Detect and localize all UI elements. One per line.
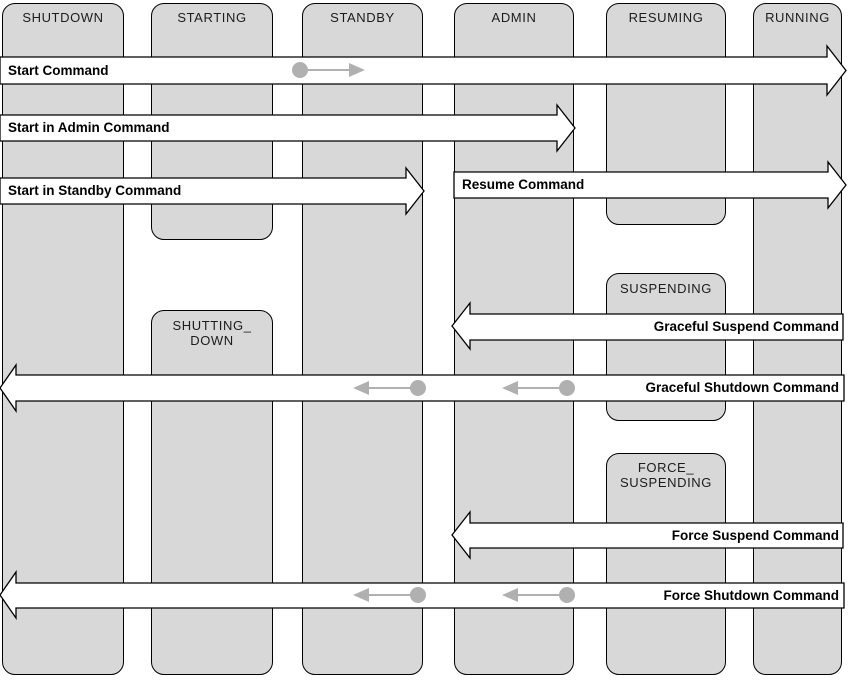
state-label-admin: ADMIN [455, 10, 573, 25]
command-label-graceful-suspend: Graceful Suspend Command [654, 314, 839, 340]
dot-arrow-left-icon [352, 586, 426, 604]
arrow-graceful-suspend-command: Graceful Suspend Command [452, 302, 844, 350]
command-label-start-in-admin: Start in Admin Command [8, 115, 170, 141]
state-label-running: RUNNING [754, 10, 841, 25]
dot-arrow-left-icon [501, 586, 575, 604]
arrow-start-command: Start Command [0, 45, 848, 96]
state-label-shutting-down-line1: SHUTTING_ [152, 318, 272, 333]
dot-arrow-left-icon [352, 379, 426, 397]
dot-arrow-left-icon [501, 379, 575, 397]
state-label-standby: STANDBY [303, 10, 422, 25]
arrow-start-in-admin-command: Start in Admin Command [0, 104, 576, 153]
state-label-force-suspending-line2: SUSPENDING [607, 475, 725, 490]
state-label-force-suspending-line1: FORCE_ [607, 460, 725, 475]
command-label-graceful-shutdown: Graceful Shutdown Command [645, 375, 839, 401]
command-label-start-in-standby: Start in Standby Command [8, 178, 181, 204]
transition-marker-start-right [292, 61, 366, 84]
state-box-force-suspending: FORCE_ SUSPENDING [606, 453, 726, 675]
right-arrow-shape [0, 45, 848, 96]
state-label-starting: STARTING [152, 10, 272, 25]
state-label-shutdown: SHUTDOWN [3, 10, 123, 25]
state-label-suspending: SUSPENDING [607, 281, 725, 296]
arrow-resume-command: Resume Command [454, 161, 847, 209]
command-label-start: Start Command [8, 57, 109, 84]
command-label-force-shutdown: Force Shutdown Command [664, 583, 840, 608]
dot-arrow-right-icon [292, 61, 366, 79]
transition-marker-graceful-shutdown-standby [352, 379, 426, 402]
state-transition-diagram: SHUTDOWN STARTING STANDBY ADMIN RESUMING… [0, 0, 848, 681]
transition-marker-force-shutdown-standby [352, 586, 426, 609]
state-label-resuming: RESUMING [607, 10, 725, 25]
transition-marker-graceful-shutdown-admin [501, 379, 575, 402]
state-label-shutting-down-line2: DOWN [152, 333, 272, 348]
arrow-force-suspend-command: Force Suspend Command [452, 511, 844, 559]
transition-marker-force-shutdown-admin [501, 586, 575, 609]
command-label-force-suspend: Force Suspend Command [672, 523, 839, 548]
command-label-resume: Resume Command [462, 172, 584, 198]
arrow-start-in-standby-command: Start in Standby Command [0, 167, 425, 215]
